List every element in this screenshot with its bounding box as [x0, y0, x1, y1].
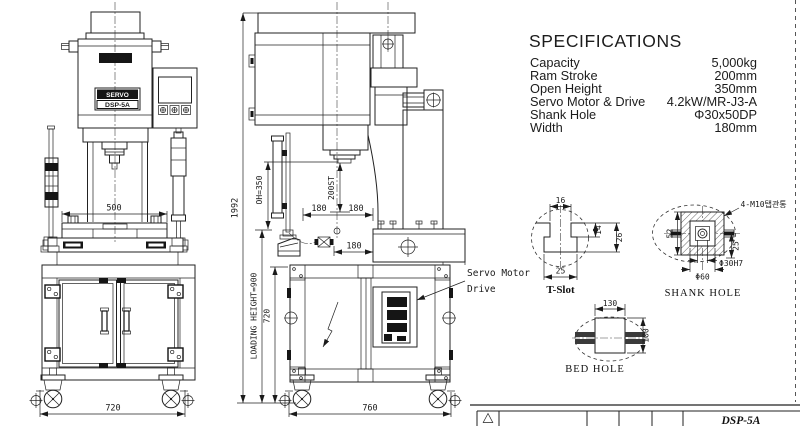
svg-text:4-M10탭관통: 4-M10탭관통 [741, 199, 787, 209]
dim-open-height: OH=350 [255, 162, 338, 229]
tap-callout: 4-M10탭관통 [724, 199, 787, 216]
svg-text:180: 180 [348, 204, 363, 214]
svg-text:500: 500 [106, 204, 121, 214]
light-curtain [272, 133, 297, 239]
svg-text:16: 16 [556, 196, 566, 205]
front-cabinet [42, 265, 195, 380]
dim-throat: 180 [334, 242, 373, 257]
revision-triangle-icon [483, 414, 493, 423]
dim-ram-offsets: 180 180 [303, 204, 373, 221]
bed-bolts [378, 221, 437, 229]
t-slot-detail: 16 14 26 25 T-Slot [532, 196, 625, 296]
caster-icon [279, 368, 315, 408]
hinge-icon [168, 285, 183, 298]
svg-text:130: 130 [603, 299, 618, 308]
title-block: DSP-5A [470, 405, 800, 426]
panel-buttons [159, 106, 191, 115]
shank-hole-detail: 4-M10탭관통 52 25 Φ30H7 Φ60 SHANK HOLE [653, 199, 787, 299]
svg-text:14: 14 [594, 225, 603, 235]
foot-switch [278, 238, 300, 256]
bed-hole-label: BED HOLE [565, 364, 625, 375]
svg-text:180: 180 [346, 242, 361, 252]
svg-text:200ST: 200ST [327, 176, 336, 200]
svg-text:OH=350: OH=350 [255, 175, 264, 204]
specifications-panel: SPECIFICATIONS Capacity 5,000kg Ram Stro… [529, 31, 757, 135]
front-view-drawing: HanJin SERVO DSP-5A [30, 2, 198, 417]
valve-block [289, 228, 340, 247]
svg-text:Servo Motor: Servo Motor [467, 268, 530, 279]
title-block-model: DSP-5A [721, 415, 761, 426]
dim-stroke: 200ST [327, 163, 350, 212]
svg-text:26: 26 [615, 233, 624, 243]
door-handle-left [101, 308, 109, 334]
hinge-icon [168, 348, 183, 361]
side-cabinet [284, 265, 456, 382]
servo-drive-callout: Servo Motor Drive [417, 268, 530, 300]
drawing-sheet: HanJin SERVO DSP-5A [0, 0, 800, 426]
dim-cabinet-height: 720 [263, 267, 289, 403]
svg-text:Φ60: Φ60 [695, 273, 710, 282]
spec-value: 180mm [714, 120, 757, 135]
svg-text:720: 720 [105, 404, 120, 414]
bed-hole-detail: 130 100 BED HOLE [565, 299, 650, 375]
svg-text:25: 25 [556, 267, 566, 276]
technical-drawing: HanJin SERVO DSP-5A [0, 0, 800, 426]
cabinet-door-left [59, 280, 117, 367]
door-handle-right [123, 308, 131, 334]
svg-text:720: 720 [263, 309, 272, 324]
spec-label: Width [530, 120, 563, 135]
svg-text:100: 100 [642, 328, 651, 343]
plate-model-label: DSP-5A [105, 102, 130, 109]
control-panel [153, 68, 197, 128]
t-slot-label: T-Slot [546, 284, 575, 296]
specifications-title: SPECIFICATIONS [529, 31, 682, 51]
plate-servo-label: SERVO [106, 92, 129, 99]
servo-drive-unit [373, 287, 417, 347]
svg-text:1992: 1992 [231, 198, 241, 218]
svg-text:180: 180 [311, 204, 326, 214]
power-arrow-icon [323, 302, 338, 347]
panel-screen [159, 77, 192, 103]
svg-text:Φ30H7: Φ30H7 [719, 259, 743, 268]
shank-hole-label: SHANK HOLE [665, 288, 742, 299]
caster-icon [159, 368, 195, 408]
svg-text:LOADING HEIGHT=900: LOADING HEIGHT=900 [250, 272, 259, 359]
caster-icon [426, 368, 462, 408]
svg-text:760: 760 [362, 404, 377, 414]
svg-text:Drive: Drive [467, 284, 496, 295]
dim-side-base-width: 760 [289, 392, 451, 417]
dim-bedhole-width: 130 [595, 299, 625, 316]
hinge-icon [45, 285, 60, 298]
caster-icon [30, 368, 66, 408]
side-view-drawing: 1992 [231, 2, 531, 417]
svg-text:25: 25 [732, 241, 741, 251]
svg-text:52: 52 [666, 229, 675, 239]
brand-label: HanJin [105, 56, 125, 63]
hinge-icon [45, 348, 60, 361]
